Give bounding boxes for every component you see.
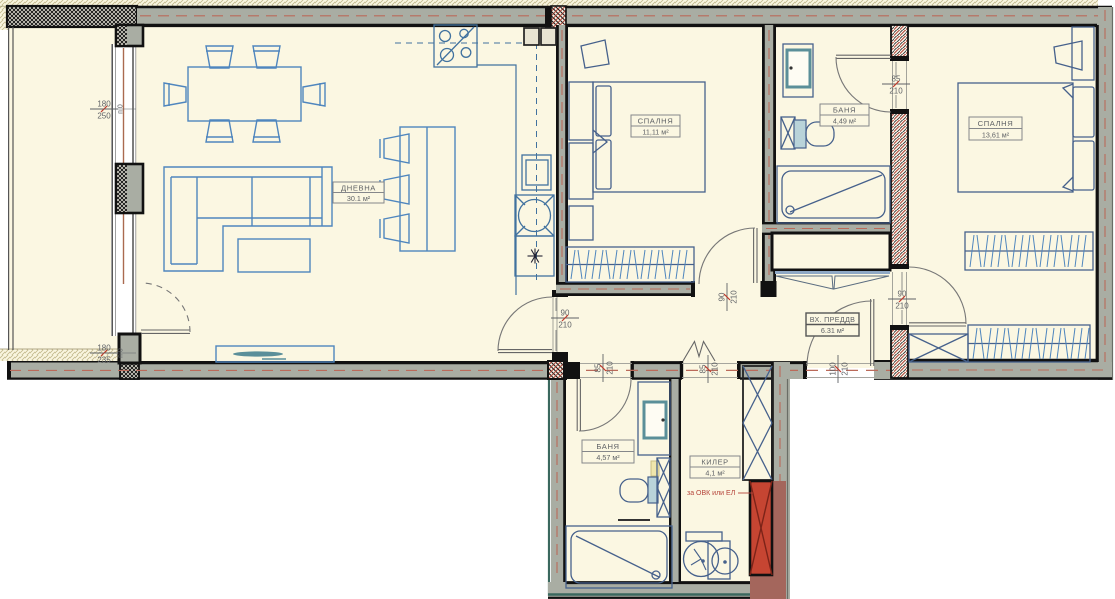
svg-text:4,57 м²: 4,57 м²: [596, 453, 620, 462]
svg-text:210: 210: [889, 87, 903, 96]
svg-text:БАНЯ: БАНЯ: [596, 442, 619, 451]
svg-text:210: 210: [606, 361, 615, 375]
svg-text:235: 235: [97, 356, 111, 365]
svg-text:КИЛЕР: КИЛЕР: [701, 458, 728, 467]
svg-text:4,49 м²: 4,49 м²: [833, 117, 857, 126]
svg-text:90: 90: [718, 292, 727, 301]
svg-text:БАНЯ: БАНЯ: [833, 106, 856, 115]
svg-text:СПАЛНЯ: СПАЛНЯ: [978, 119, 1014, 128]
svg-text:за ОВК или ЕЛ: за ОВК или ЕЛ: [687, 490, 736, 497]
svg-text:90: 90: [561, 309, 570, 318]
svg-text:210: 210: [730, 290, 739, 304]
svg-text:ВХ. ПРЕДДВ: ВХ. ПРЕДДВ: [810, 315, 856, 324]
svg-text:85: 85: [594, 363, 603, 372]
svg-text:6.31 м²: 6.31 м²: [821, 326, 845, 335]
svg-text:210: 210: [558, 321, 572, 330]
svg-text:13,61 м²: 13,61 м²: [982, 131, 1010, 140]
svg-text:210: 210: [895, 302, 909, 311]
svg-text:210: 210: [711, 362, 720, 376]
svg-text:4,1 м²: 4,1 м²: [705, 469, 725, 478]
svg-text:250: 250: [97, 112, 111, 121]
svg-text:ДНЕВНА: ДНЕВНА: [341, 184, 376, 193]
svg-text:210: 210: [841, 362, 850, 376]
svg-text:СПАЛНЯ: СПАЛНЯ: [638, 117, 674, 126]
svg-text:100: 100: [829, 362, 838, 376]
svg-text:180: 180: [97, 100, 111, 109]
svg-text:11,11 м²: 11,11 м²: [642, 128, 669, 137]
svg-text:180: 180: [97, 344, 111, 353]
svg-text:85: 85: [699, 364, 708, 373]
svg-text:30.1 м²: 30.1 м²: [347, 194, 371, 203]
